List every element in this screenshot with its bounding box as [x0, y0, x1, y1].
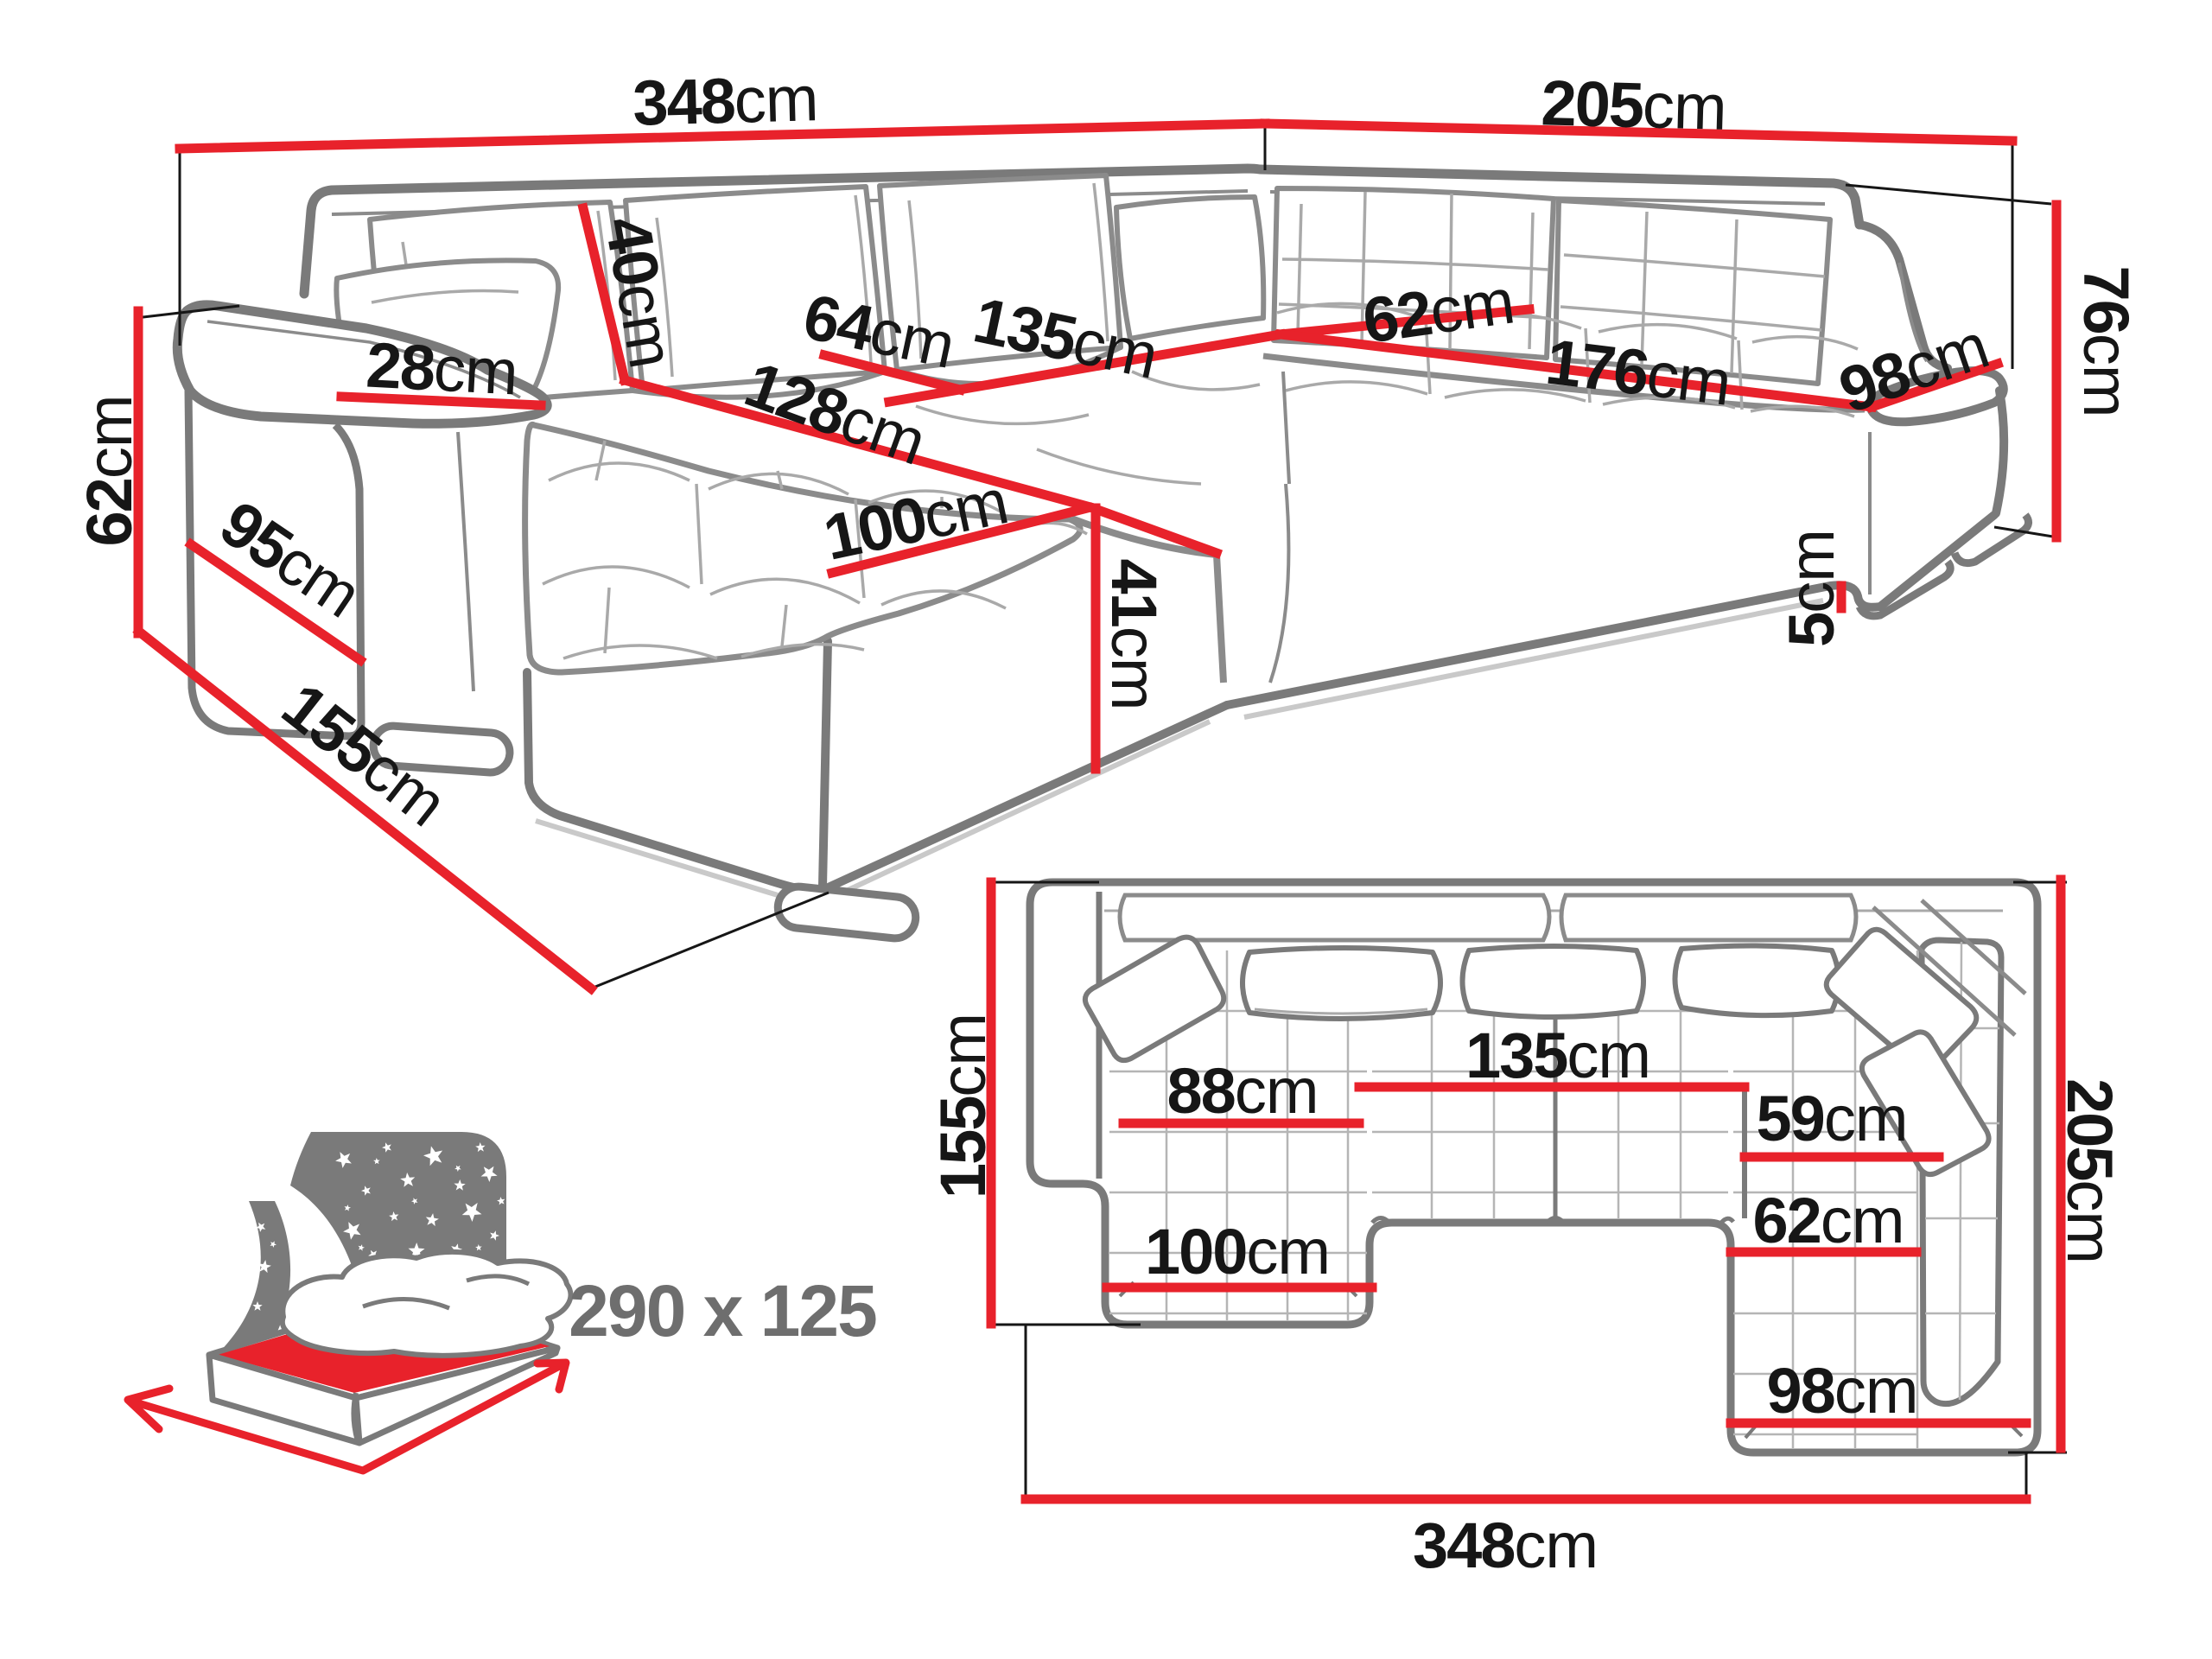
svg-text:290 x 125: 290 x 125 [569, 1270, 876, 1351]
svg-text:135cm: 135cm [1465, 1020, 1650, 1091]
svg-text:76cm: 76cm [2070, 266, 2142, 417]
svg-text:59cm: 59cm [1757, 1083, 1908, 1154]
svg-text:41cm: 41cm [1098, 559, 1170, 710]
svg-text:205cm: 205cm [2054, 1078, 2126, 1263]
svg-text:348cm: 348cm [632, 62, 818, 139]
svg-text:155cm: 155cm [927, 1014, 999, 1198]
svg-text:348cm: 348cm [1413, 1510, 1598, 1581]
svg-text:28cm: 28cm [365, 329, 519, 409]
svg-text:98cm: 98cm [1767, 1355, 1918, 1427]
svg-text:205cm: 205cm [1541, 67, 1727, 143]
svg-text:88cm: 88cm [1167, 1055, 1319, 1127]
svg-text:5cm: 5cm [1776, 530, 1847, 647]
svg-text:62cm: 62cm [1753, 1185, 1904, 1256]
svg-text:62cm: 62cm [73, 396, 145, 547]
svg-text:100cm: 100cm [1145, 1216, 1330, 1287]
